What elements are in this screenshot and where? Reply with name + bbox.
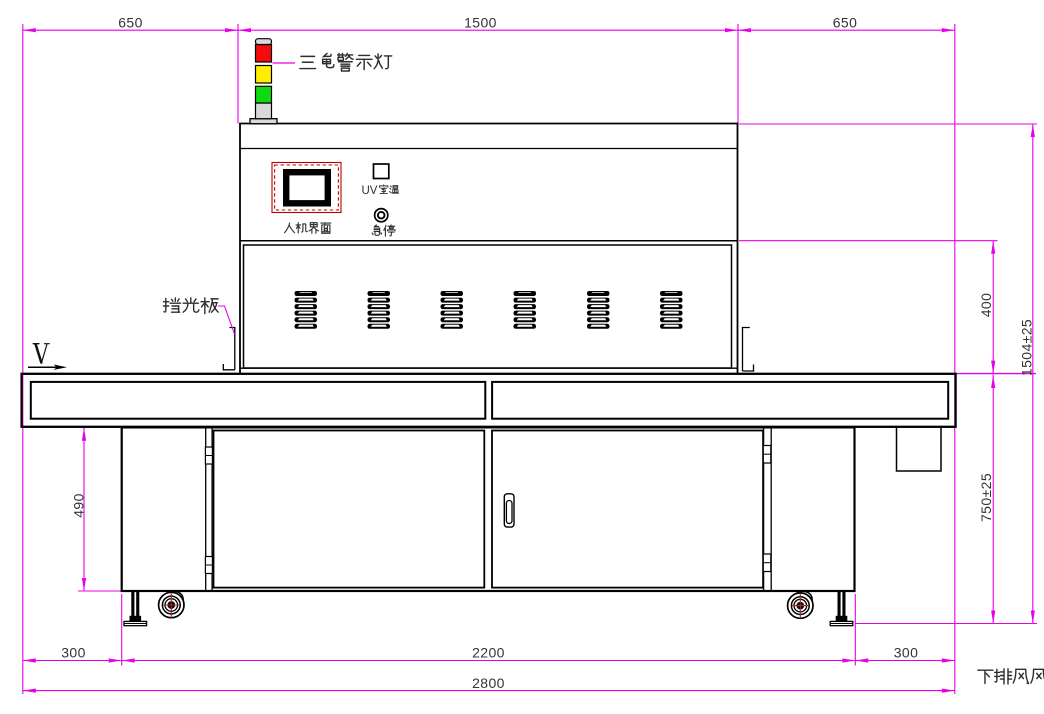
svg-text:2200: 2200 bbox=[472, 645, 505, 661]
svg-text:1504±25: 1504±25 bbox=[1019, 319, 1035, 376]
svg-text:490: 490 bbox=[71, 493, 87, 518]
svg-text:1500: 1500 bbox=[464, 15, 497, 31]
svg-text:400: 400 bbox=[978, 293, 994, 318]
svg-text:650: 650 bbox=[833, 15, 858, 31]
svg-text:750±25: 750±25 bbox=[978, 473, 994, 522]
svg-text:2800: 2800 bbox=[472, 675, 505, 691]
svg-text:UV: UV bbox=[362, 185, 378, 197]
svg-text:300: 300 bbox=[894, 645, 919, 661]
svg-text:300: 300 bbox=[61, 645, 86, 661]
svg-text:650: 650 bbox=[118, 15, 143, 31]
